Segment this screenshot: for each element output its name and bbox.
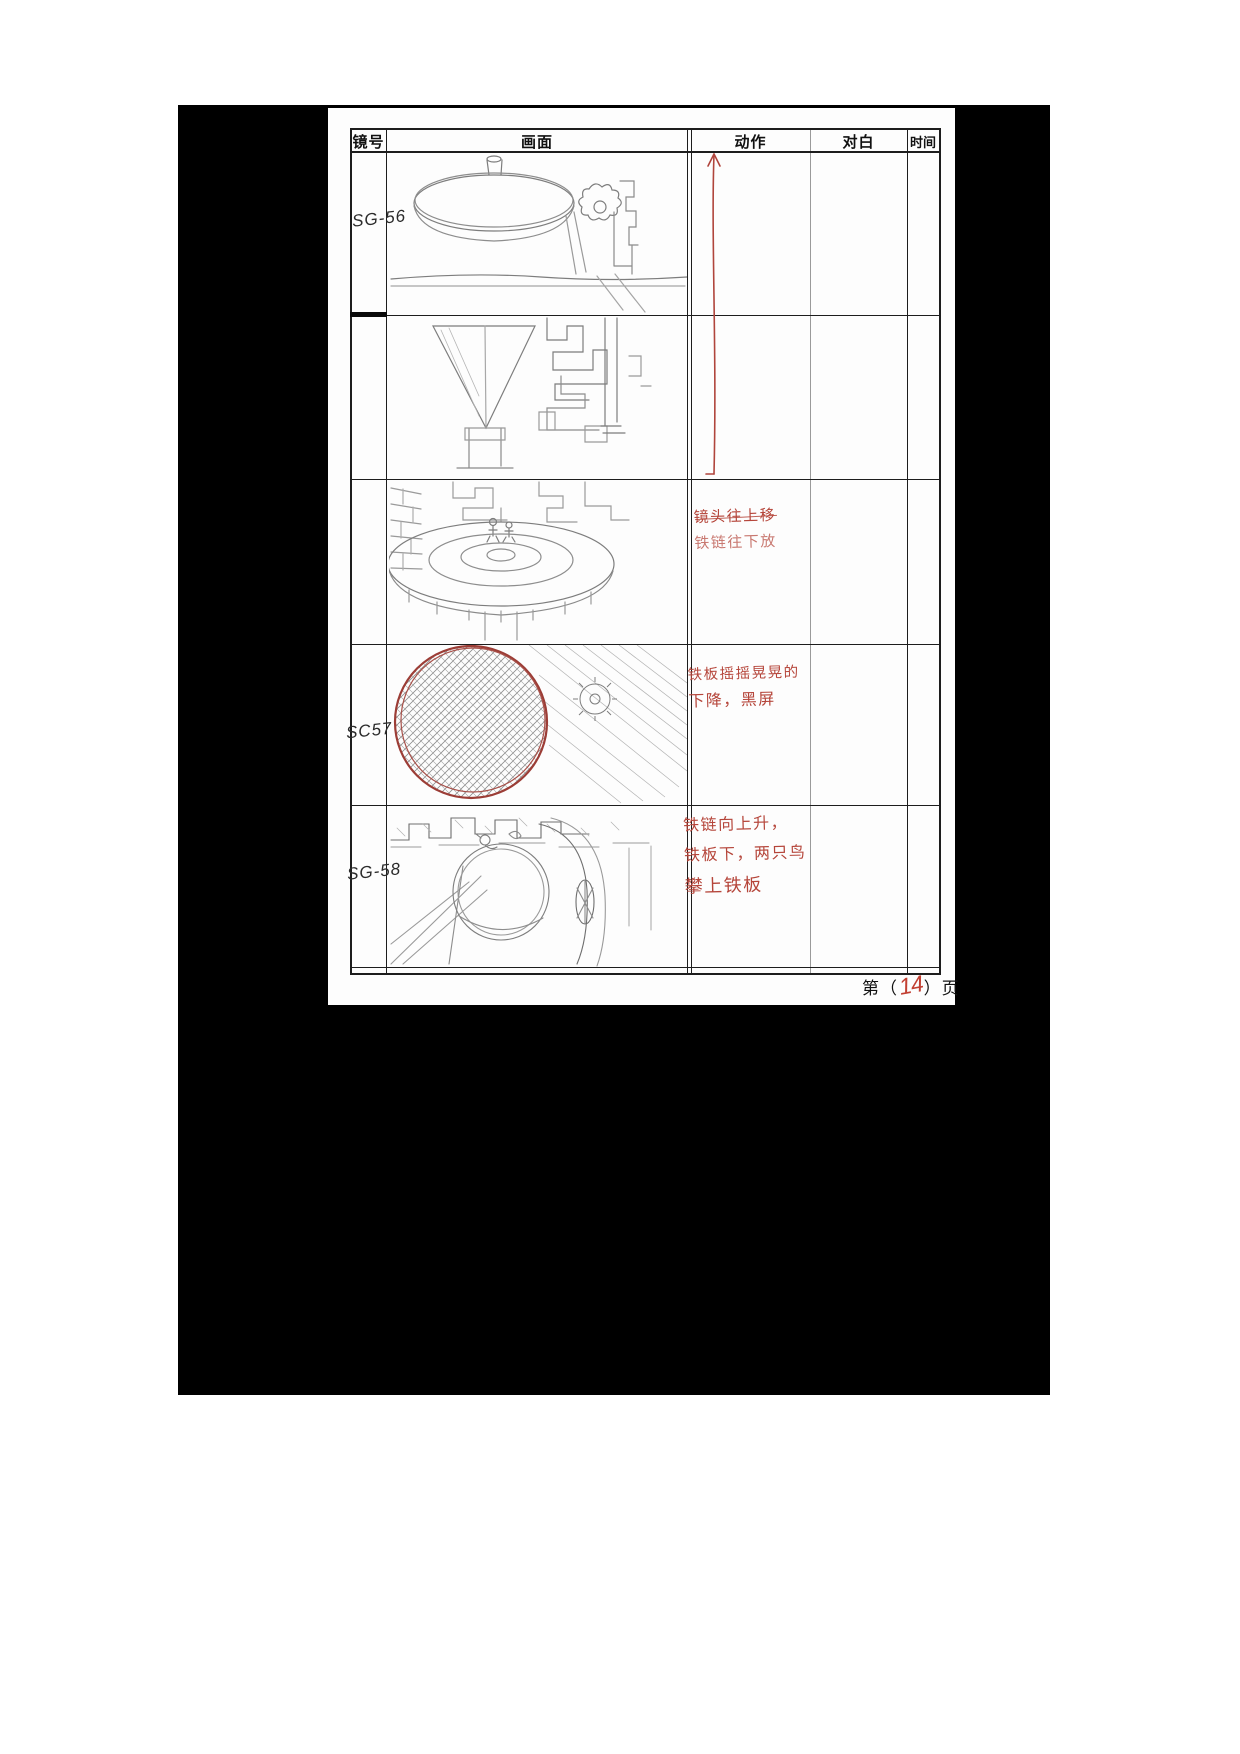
action-note-line: 攀上铁板 (684, 868, 807, 904)
handwritten-page-number: 14 (897, 970, 925, 1001)
table-border-left (350, 128, 352, 973)
column-header-picture: 画面 (387, 131, 687, 151)
table-border-bottom (350, 973, 941, 975)
action-note-shot57: 铁板摇摇晃晃的 下降，黑屏 (687, 661, 800, 717)
sketch-row2-cone-and-blocks (389, 316, 687, 478)
divider-action-dialogue (810, 128, 811, 973)
table-border-right (939, 128, 941, 973)
divider-shot-picture (386, 128, 387, 973)
table-bottom-inner (350, 967, 941, 968)
action-note-line: 下降，黑屏 (688, 686, 801, 717)
sketch-row3-round-platform (389, 480, 687, 643)
column-header-shot-number: 镜号 (350, 131, 387, 151)
action-note-shot58: 铁链向上升， 铁板下，两只鸟 攀上铁板 (683, 808, 808, 904)
action-note-line: 铁板摇摇晃晃的 (687, 661, 800, 689)
sketch-row5-pit-platform (389, 806, 687, 967)
row-divider-1-heavy-segment (350, 312, 387, 317)
action-note-line: 铁链向上升， (683, 808, 806, 841)
camera-pan-up-arrow (692, 128, 810, 488)
page-footer: 第（ 14 ）页 (862, 972, 960, 1001)
footer-suffix: ）页 (924, 974, 960, 999)
footer-prefix: 第（ (862, 974, 898, 999)
action-note-line: 铁板下，两只鸟 (684, 838, 807, 871)
sketch-row4-dark-sphere (389, 645, 687, 804)
column-header-time: 时间 (907, 131, 939, 151)
action-note-shot56: 镜头往上移 铁链往下放 (693, 503, 777, 558)
column-header-dialogue: 对白 (810, 131, 907, 151)
divider-dialogue-time (907, 128, 908, 973)
action-note-line: 铁链往下放 (694, 529, 777, 557)
sketch-row1-hanging-disc (389, 154, 687, 314)
